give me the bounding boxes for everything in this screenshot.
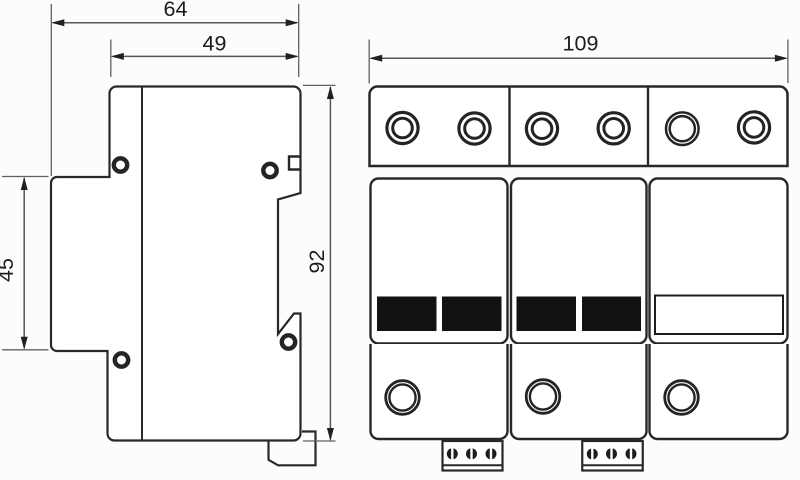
svg-text:45: 45 (0, 258, 18, 282)
svg-text:92: 92 (305, 250, 329, 274)
svg-text:109: 109 (563, 32, 599, 56)
svg-text:49: 49 (203, 32, 227, 56)
svg-text:64: 64 (164, 0, 188, 21)
